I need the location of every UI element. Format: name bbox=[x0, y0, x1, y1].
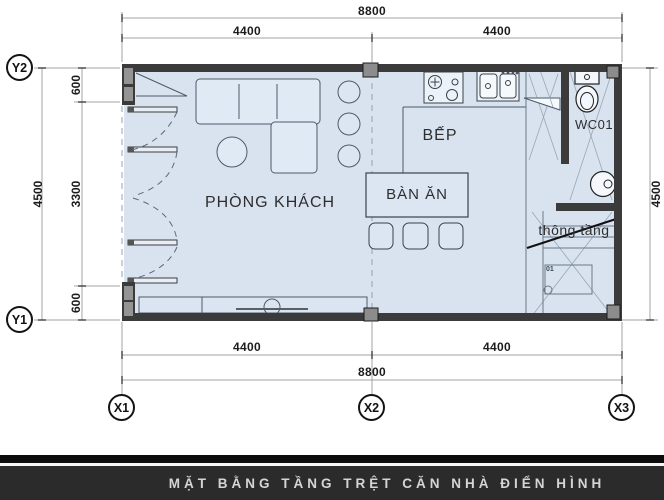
grid-bubble-y2: Y2 bbox=[6, 54, 33, 81]
caption-bar: MẶT BẰNG TẦNG TRỆT CĂN NHÀ ĐIỂN HÌNH bbox=[0, 455, 664, 500]
dim-bottom-total: 8800 bbox=[122, 365, 622, 379]
room-label-void: thông tầng bbox=[527, 222, 621, 238]
tv-console bbox=[139, 297, 367, 315]
grid-bubble-y1: Y1 bbox=[6, 306, 33, 333]
dim-left-mid-seg: 3300 bbox=[69, 174, 83, 214]
room-label-wc: WC01 bbox=[566, 117, 622, 132]
grid-bubble-x2: X2 bbox=[358, 394, 385, 421]
room-label-dining: BÀN ĂN bbox=[366, 186, 468, 203]
kitchen-sink bbox=[477, 71, 519, 101]
column-x3-bottom bbox=[607, 305, 620, 319]
room-label-living: PHÒNG KHÁCH bbox=[170, 194, 370, 212]
floor-plan-drawing bbox=[0, 0, 664, 500]
stove bbox=[424, 72, 463, 103]
column-x2-bottom bbox=[364, 308, 378, 321]
grid-bubble-x1: X1 bbox=[108, 394, 135, 421]
wall-right bbox=[614, 64, 622, 321]
toilet bbox=[575, 71, 599, 112]
dim-bottom-right-span: 4400 bbox=[372, 340, 622, 354]
caption-text: MẶT BẰNG TẦNG TRỆT CĂN NHÀ ĐIỂN HÌNH bbox=[169, 476, 606, 491]
dim-top-left-span: 4400 bbox=[122, 24, 372, 38]
dim-right-total: 4500 bbox=[649, 172, 663, 216]
caption-top-strip bbox=[0, 455, 664, 463]
dim-left-top-seg: 600 bbox=[69, 65, 83, 105]
caption-background: MẶT BẰNG TẦNG TRỆT CĂN NHÀ ĐIỂN HÌNH bbox=[0, 466, 664, 500]
room-label-kitchen: BẾP bbox=[400, 127, 480, 145]
wash-basin bbox=[591, 172, 616, 197]
floor-plan-page: 8800 4400 4400 4400 4400 8800 4500 600 3… bbox=[0, 0, 664, 500]
column-x2-top bbox=[363, 63, 378, 77]
wall-stair bbox=[556, 203, 622, 211]
stair-step-number: 01 bbox=[546, 266, 554, 273]
dim-bottom-left-span: 4400 bbox=[122, 340, 372, 354]
dim-top-right-span: 4400 bbox=[372, 24, 622, 38]
dining-stools bbox=[369, 223, 463, 249]
dim-top-total: 8800 bbox=[122, 4, 622, 18]
column-x3-top bbox=[607, 66, 619, 78]
round-stools bbox=[338, 81, 360, 167]
coffee-table bbox=[217, 137, 247, 167]
dim-left-bottom-seg: 600 bbox=[69, 283, 83, 323]
grid-bubble-x3: X3 bbox=[608, 394, 635, 421]
dim-left-total: 4500 bbox=[31, 172, 45, 216]
